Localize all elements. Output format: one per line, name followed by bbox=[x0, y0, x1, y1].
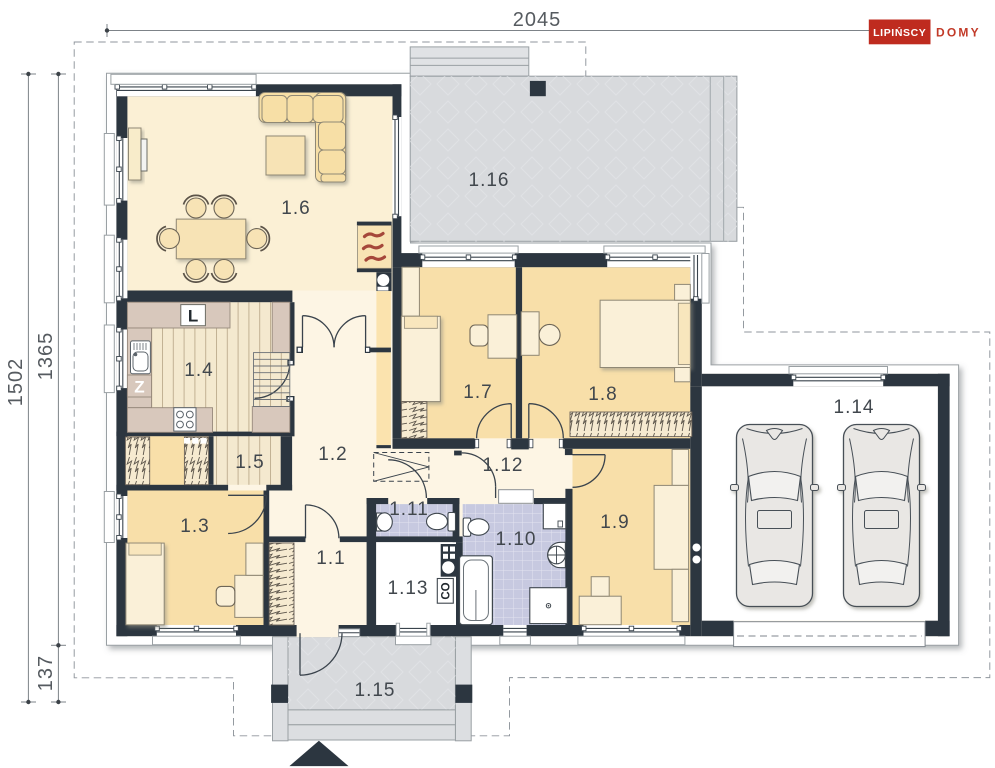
svg-text:1.5: 1.5 bbox=[235, 452, 264, 473]
svg-text:DOMY: DOMY bbox=[936, 26, 981, 40]
svg-text:1.1: 1.1 bbox=[316, 548, 345, 569]
svg-text:137: 137 bbox=[35, 655, 57, 691]
svg-text:1365: 1365 bbox=[35, 332, 57, 381]
svg-text:1.13: 1.13 bbox=[388, 578, 429, 599]
svg-text:CO: CO bbox=[440, 582, 452, 599]
svg-text:1.15: 1.15 bbox=[355, 680, 396, 701]
svg-text:1.6: 1.6 bbox=[281, 198, 310, 219]
svg-text:1.3: 1.3 bbox=[180, 516, 209, 537]
svg-text:L: L bbox=[188, 307, 198, 326]
svg-text:1.4: 1.4 bbox=[184, 360, 213, 381]
svg-text:LIPIŃSCY: LIPIŃSCY bbox=[873, 26, 926, 39]
svg-text:1.11: 1.11 bbox=[389, 499, 429, 520]
svg-text:1.8: 1.8 bbox=[588, 384, 617, 405]
svg-text:2045: 2045 bbox=[513, 9, 562, 31]
svg-text:Z: Z bbox=[134, 378, 144, 397]
svg-text:1.9: 1.9 bbox=[600, 512, 629, 533]
svg-text:1.14: 1.14 bbox=[834, 397, 875, 418]
svg-text:1.10: 1.10 bbox=[496, 529, 537, 550]
svg-text:1.12: 1.12 bbox=[483, 455, 524, 476]
svg-text:1.2: 1.2 bbox=[318, 444, 347, 465]
svg-text:1.16: 1.16 bbox=[469, 170, 510, 191]
svg-text:1502: 1502 bbox=[5, 358, 27, 407]
svg-text:1.7: 1.7 bbox=[463, 382, 492, 403]
